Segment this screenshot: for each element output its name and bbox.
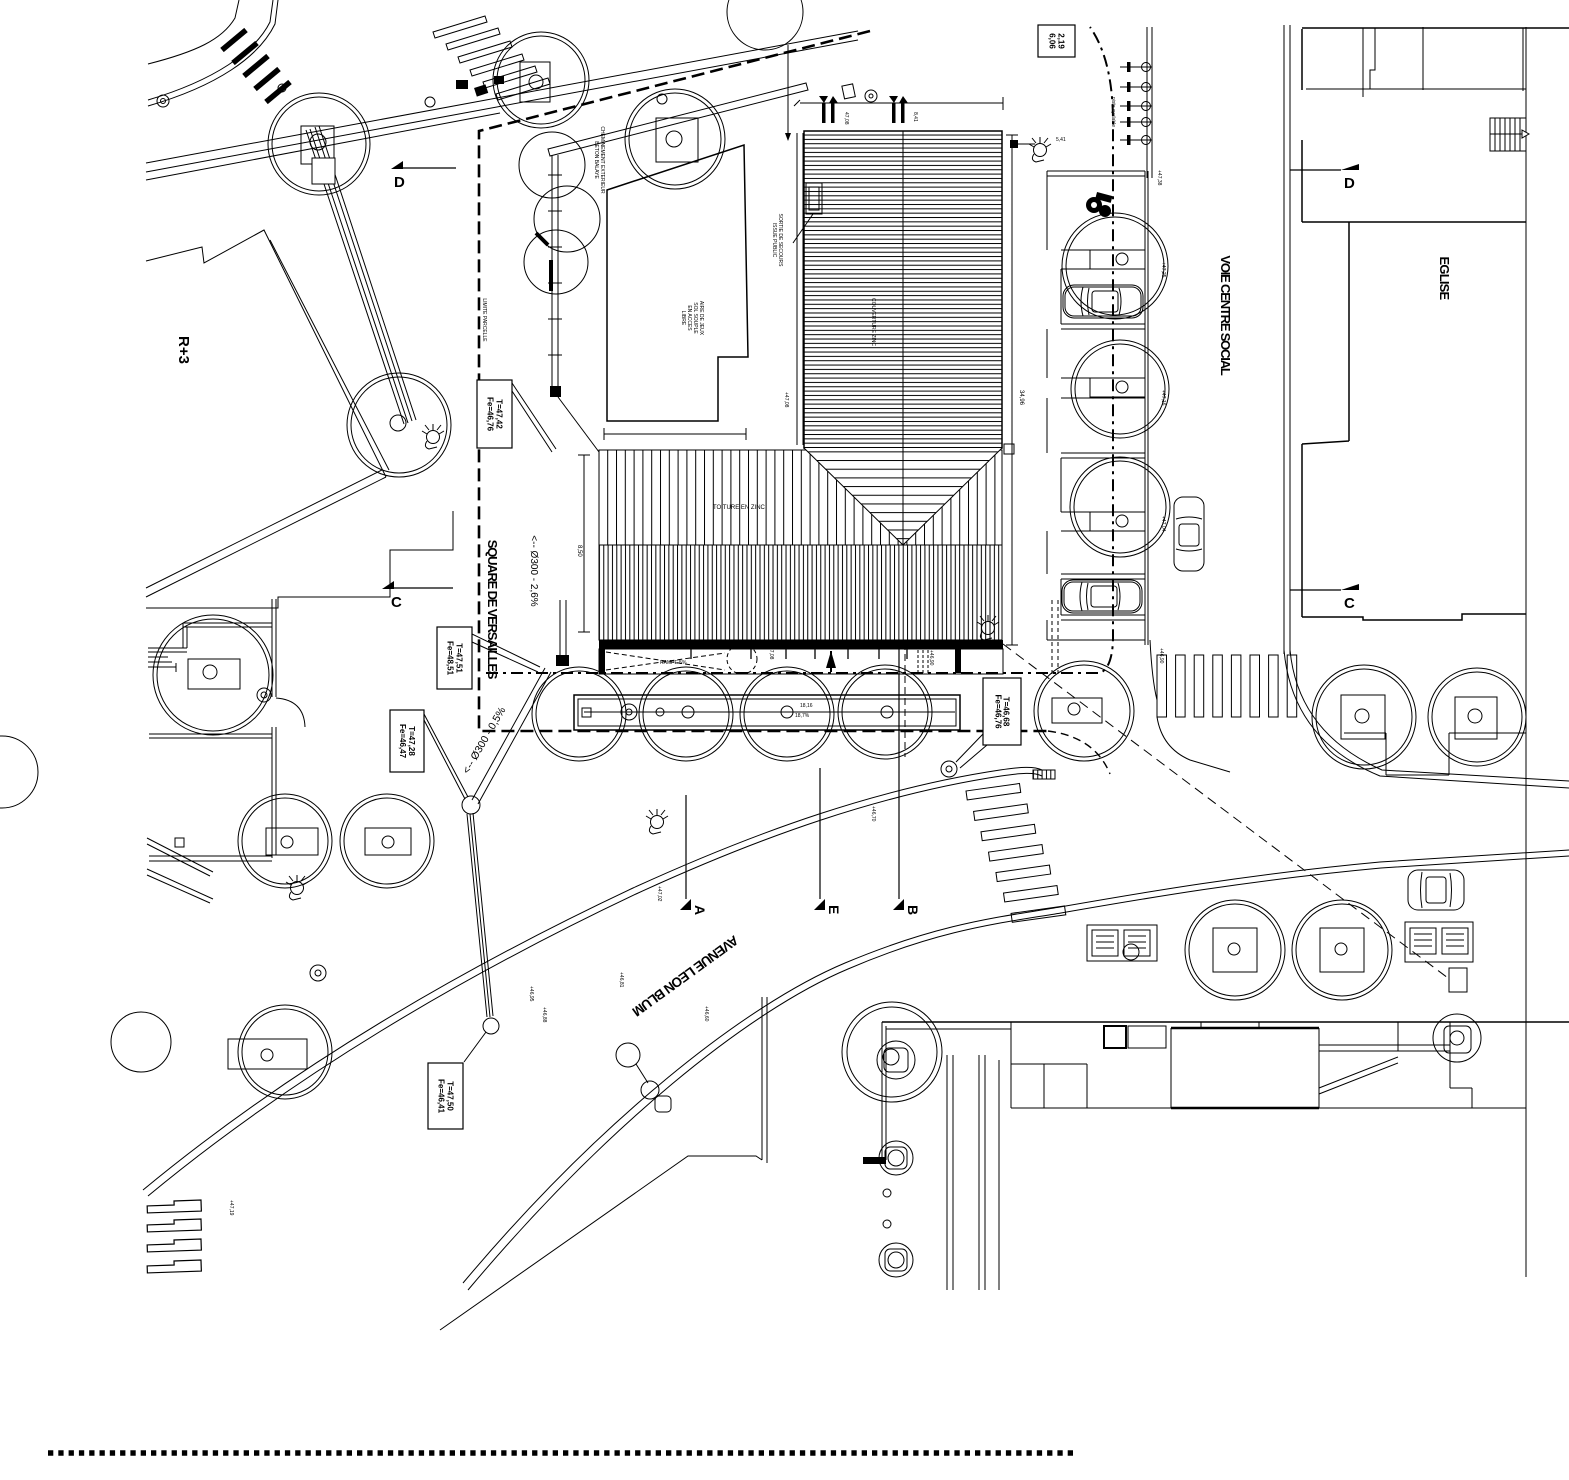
- svg-text:LIMITE PARCELLE: LIMITE PARCELLE: [481, 298, 487, 342]
- svg-text:RAMPE 5%: RAMPE 5%: [660, 660, 687, 666]
- svg-text:8,41: 8,41: [912, 112, 918, 122]
- svg-text:Fe=46,76: Fe=46,76: [994, 694, 1003, 729]
- svg-text:BETON BALAYE: BETON BALAYE: [593, 141, 599, 179]
- svg-text:18,7%: 18,7%: [795, 713, 810, 719]
- svg-text:SQUARE DE VERSAILLES: SQUARE DE VERSAILLES: [485, 540, 500, 680]
- svg-text:C: C: [391, 594, 402, 611]
- svg-text:Fe=46,41: Fe=46,41: [437, 1079, 446, 1114]
- svg-text:<-- Ø300 - 2,6%: <-- Ø300 - 2,6%: [528, 535, 539, 607]
- svg-text:LIBRE: LIBRE: [680, 311, 686, 326]
- svg-text:+47,08: +47,08: [768, 644, 774, 660]
- svg-text:COUVERTURE ZINC: COUVERTURE ZINC: [870, 298, 876, 346]
- svg-text:18,16: 18,16: [800, 703, 813, 709]
- svg-text:47,08: 47,08: [843, 112, 849, 125]
- svg-text:+47,16: +47,16: [1160, 390, 1166, 406]
- svg-text:2,19: 2,19: [1057, 33, 1066, 49]
- svg-text:+46,70: +46,70: [870, 806, 876, 822]
- svg-text:8,50: 8,50: [576, 545, 582, 557]
- svg-text:Fe=48,51: Fe=48,51: [446, 641, 455, 676]
- svg-text:TOITURE EN ZINC: TOITURE EN ZINC: [713, 505, 766, 511]
- svg-text:5,41: 5,41: [1056, 137, 1066, 143]
- svg-text:T=47,50: T=47,50: [446, 1081, 455, 1111]
- svg-text:+47,25: +47,25: [1160, 262, 1166, 278]
- svg-text:6,06: 6,06: [1048, 33, 1057, 49]
- svg-text:+46,81: +46,81: [618, 972, 624, 988]
- svg-text:+46,60: +46,60: [703, 1006, 709, 1022]
- svg-text:D: D: [394, 174, 405, 191]
- svg-text:+47,08: +47,08: [783, 392, 789, 408]
- svg-text:VOIE CENTRE SOCIAL: VOIE CENTRE SOCIAL: [1218, 255, 1233, 376]
- svg-text:T=47,51: T=47,51: [455, 643, 464, 673]
- svg-text:Fe=46,47: Fe=46,47: [398, 724, 407, 759]
- svg-text:+46,90: +46,90: [928, 650, 934, 666]
- svg-text:34,96: 34,96: [1018, 390, 1024, 406]
- svg-text:+47,38: +47,38: [1156, 170, 1162, 186]
- svg-text:D: D: [1344, 175, 1355, 192]
- svg-text:R+3: R+3: [175, 336, 192, 364]
- svg-text:piste cyclable: piste cyclable: [1110, 97, 1116, 127]
- svg-text:EGLISE: EGLISE: [1437, 257, 1452, 301]
- svg-text:+46,90: +46,90: [1158, 648, 1164, 664]
- svg-text:+47,19: +47,19: [228, 1200, 234, 1216]
- svg-text:C: C: [1344, 595, 1355, 612]
- svg-text:Fe=46,76: Fe=46,76: [486, 397, 495, 432]
- svg-text:+47,04: +47,04: [1160, 516, 1166, 532]
- svg-text:+46,88: +46,88: [541, 1007, 547, 1023]
- svg-text:T=47,28: T=47,28: [407, 726, 416, 756]
- svg-text:T=47,42: T=47,42: [495, 399, 504, 429]
- svg-text:B: B: [905, 905, 921, 915]
- svg-text:+46,95: +46,95: [528, 986, 534, 1002]
- svg-text:+47,02: +47,02: [656, 886, 662, 902]
- svg-text:ISSUE PUBLIC: ISSUE PUBLIC: [771, 223, 777, 258]
- svg-text:E: E: [826, 905, 842, 914]
- svg-text:A: A: [692, 905, 708, 915]
